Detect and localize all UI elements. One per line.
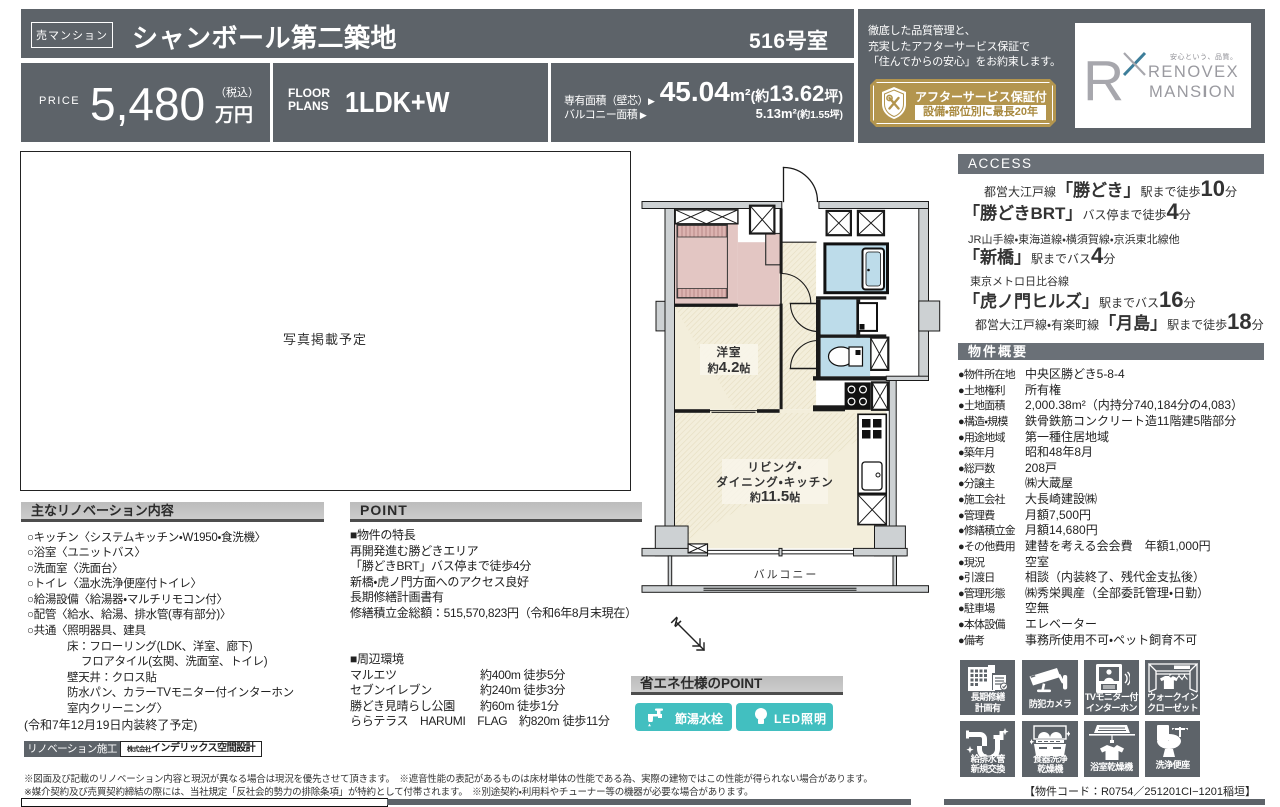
svg-text:洋室: 洋室 [717, 345, 742, 359]
svg-text:リビング・: リビング・ [748, 460, 803, 474]
svg-text:バルコニー: バルコニー [754, 568, 819, 581]
svg-text:ダイニング・キッチン: ダイニング・キッチン [716, 475, 833, 489]
